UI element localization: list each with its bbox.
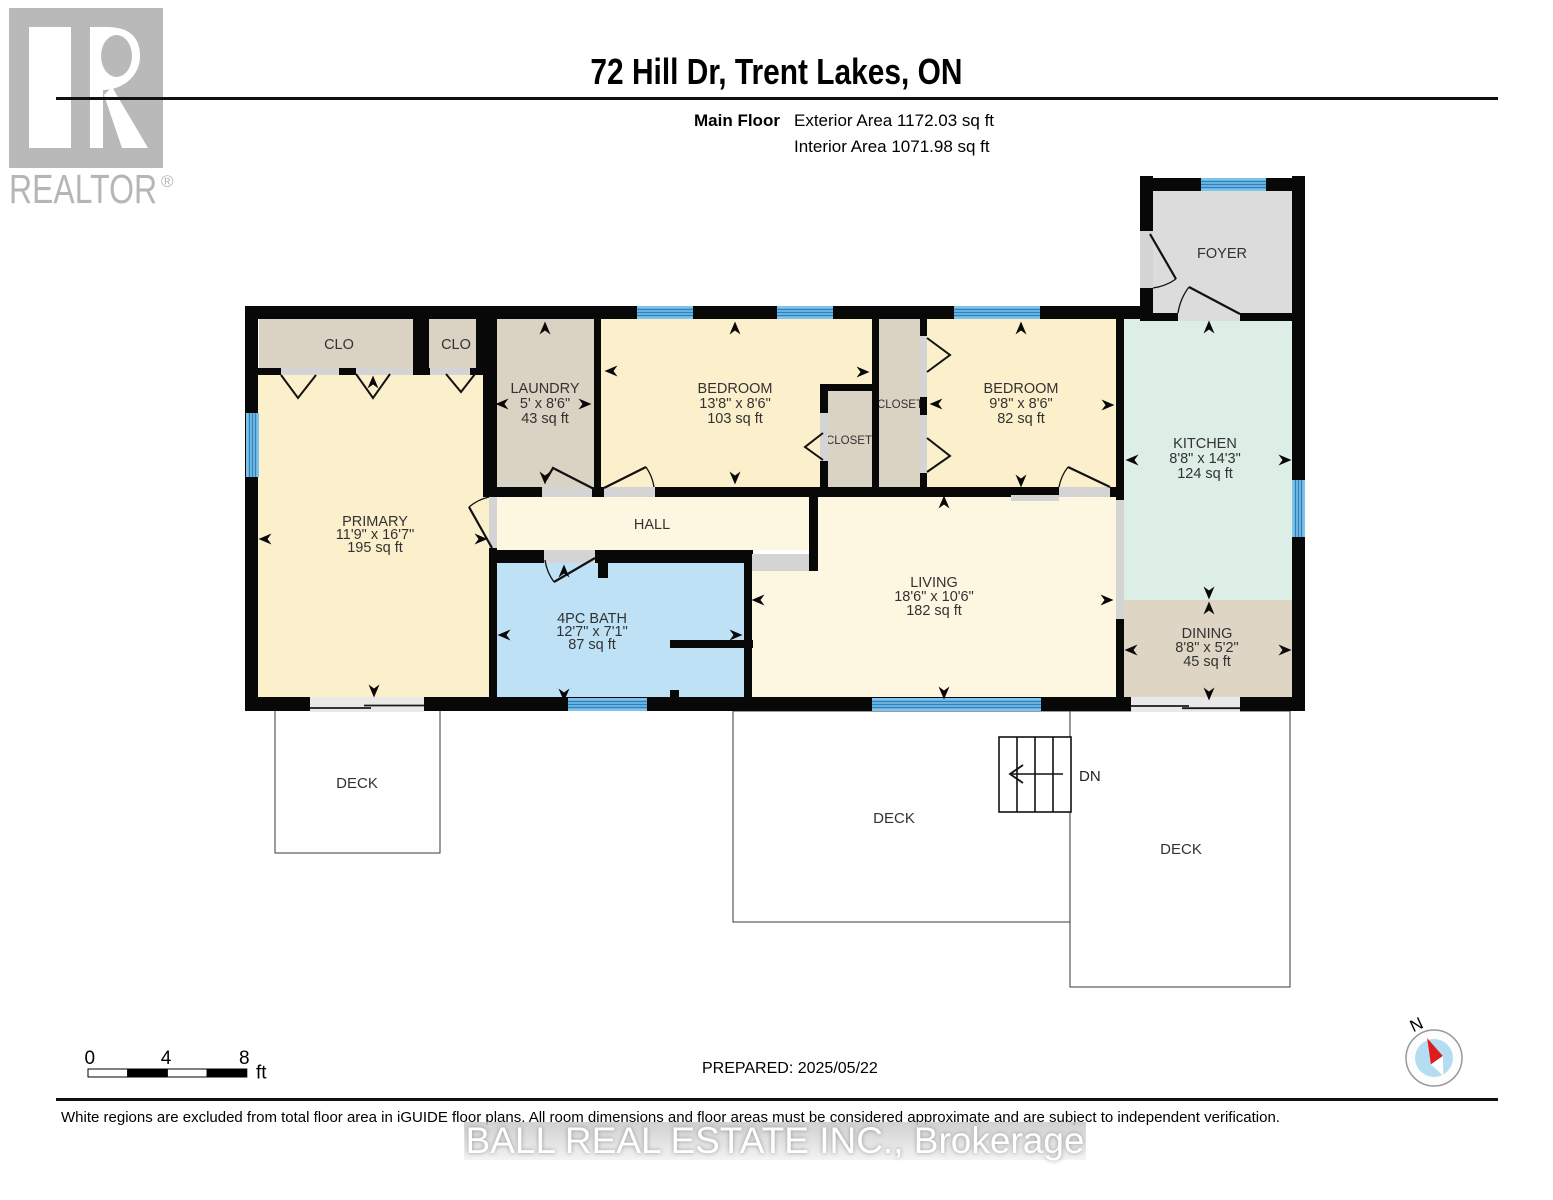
svg-text:DECK: DECK xyxy=(336,775,378,792)
svg-text:45 sq ft: 45 sq ft xyxy=(1183,654,1231,670)
svg-text:DECK: DECK xyxy=(873,810,915,827)
svg-text:87 sq ft: 87 sq ft xyxy=(568,637,616,653)
svg-text:13'8" x 8'6": 13'8" x 8'6" xyxy=(699,396,770,412)
svg-text:DN: DN xyxy=(1079,768,1101,785)
svg-text:5' x 8'6": 5' x 8'6" xyxy=(520,396,570,412)
svg-text:DECK: DECK xyxy=(1160,841,1202,858)
svg-text:8'8" x 14'3": 8'8" x 14'3" xyxy=(1169,451,1240,467)
svg-text:82 sq ft: 82 sq ft xyxy=(997,411,1045,427)
svg-text:CLOSET: CLOSET xyxy=(826,435,872,447)
svg-text:FOYER: FOYER xyxy=(1197,246,1247,262)
svg-text:KITCHEN: KITCHEN xyxy=(1173,436,1237,452)
svg-text:LAUNDRY: LAUNDRY xyxy=(510,381,579,397)
svg-text:0: 0 xyxy=(85,1048,96,1069)
svg-text:HALL: HALL xyxy=(634,517,670,533)
svg-text:124 sq ft: 124 sq ft xyxy=(1177,466,1233,482)
svg-text:CLO: CLO xyxy=(441,337,471,353)
svg-text:BEDROOM: BEDROOM xyxy=(984,381,1059,397)
svg-text:9'8" x 8'6": 9'8" x 8'6" xyxy=(989,396,1052,412)
svg-text:103 sq ft: 103 sq ft xyxy=(707,411,763,427)
svg-text:8: 8 xyxy=(239,1048,250,1069)
svg-text:BEDROOM: BEDROOM xyxy=(698,381,773,397)
svg-text:CLO: CLO xyxy=(324,337,354,353)
svg-text:ft: ft xyxy=(256,1063,267,1084)
svg-text:4: 4 xyxy=(161,1048,172,1069)
svg-text:CLOSET: CLOSET xyxy=(877,399,923,411)
svg-text:182 sq ft: 182 sq ft xyxy=(906,603,962,619)
svg-text:43 sq ft: 43 sq ft xyxy=(521,411,569,427)
svg-text:195 sq ft: 195 sq ft xyxy=(347,540,403,556)
